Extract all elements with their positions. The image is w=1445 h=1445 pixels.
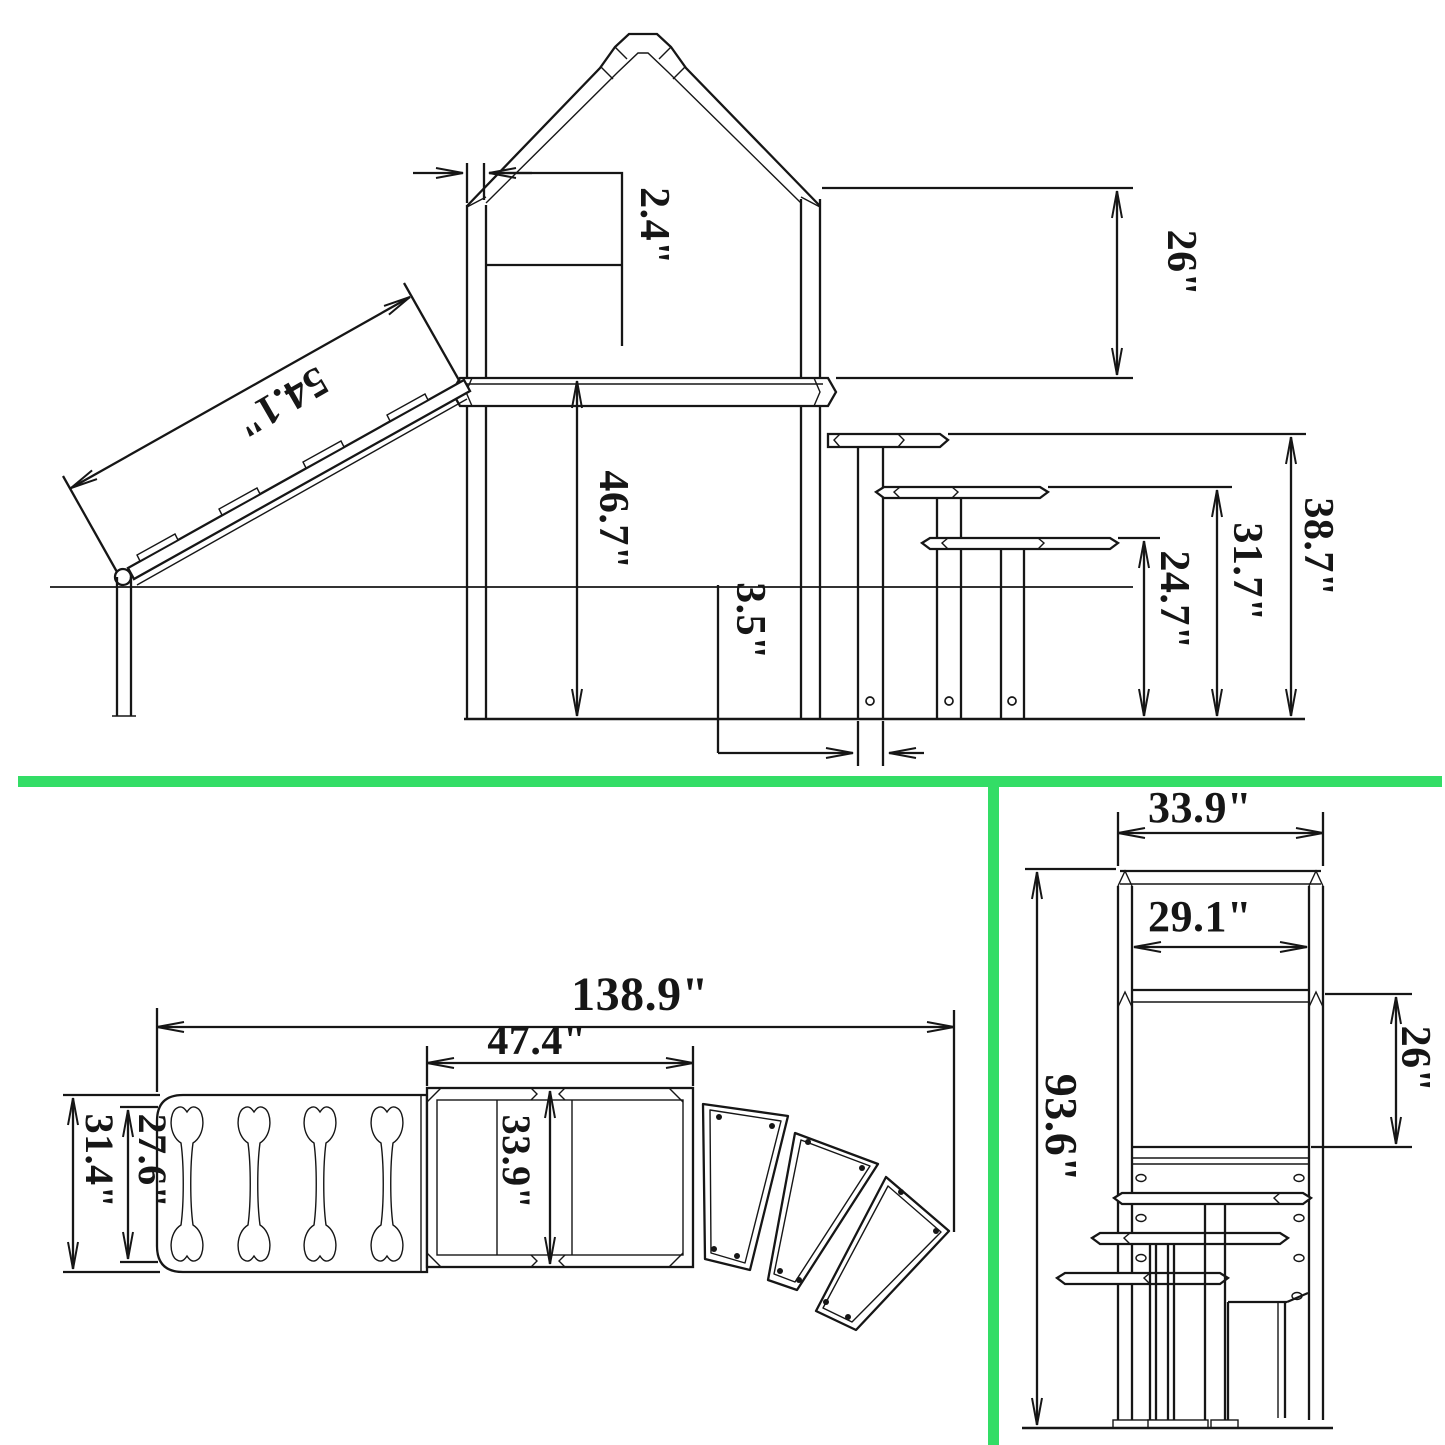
dim-label-step1-height: 24.7" — [1153, 550, 1195, 649]
right-wall-post — [801, 197, 820, 718]
front-base — [1022, 1420, 1333, 1428]
dim-label-deck-width: 33.9" — [496, 1115, 536, 1210]
dim-label-inner-width: 29.1" — [1148, 895, 1252, 939]
dim-label-step2-height: 31.7" — [1226, 522, 1268, 621]
left-wall-post — [467, 197, 486, 718]
front-frame — [1118, 871, 1323, 1420]
climbing-ramp — [112, 380, 470, 716]
step-platform-3 — [922, 538, 1118, 719]
dim-label-total-length: 138.9" — [571, 971, 709, 1019]
plan-deck — [427, 1088, 693, 1267]
deck-floor — [452, 378, 836, 406]
dim-label-post-width: 2.4" — [633, 187, 675, 265]
blueprint-page: 2.4" 26" 54.1" 46.7" 3.5" 24.7" 31.7" 38… — [0, 0, 1445, 1445]
dim-label-wall-height: 26" — [1160, 230, 1202, 297]
section-divider-vertical — [988, 787, 999, 1445]
dim-label-deck-length: 47.4" — [487, 1020, 586, 1062]
side-dimensions — [63, 163, 1306, 766]
step-platform-1 — [828, 434, 948, 719]
dim-label-deck-height: 46.7" — [592, 470, 634, 569]
plan-ramp — [157, 1095, 427, 1272]
dim-label-window-height: 26" — [1394, 1026, 1436, 1093]
drawing-canvas — [0, 0, 1445, 1445]
dim-label-step3-height: 38.7" — [1297, 497, 1339, 596]
dim-label-post-thickness: 3.5" — [729, 582, 771, 660]
plan-slide-segments — [703, 1104, 949, 1330]
front-slide — [1228, 1293, 1308, 1420]
dim-label-frame-width: 33.9" — [1148, 786, 1252, 830]
step-platform-2 — [876, 487, 1048, 719]
front-step-platforms — [1057, 1193, 1311, 1420]
dim-label-total-height: 93.6" — [1038, 1074, 1084, 1183]
roof — [467, 34, 820, 206]
dim-label-ramp-inner-width: 27.6" — [132, 1114, 172, 1209]
dim-label-ramp-width: 31.4" — [79, 1114, 119, 1209]
